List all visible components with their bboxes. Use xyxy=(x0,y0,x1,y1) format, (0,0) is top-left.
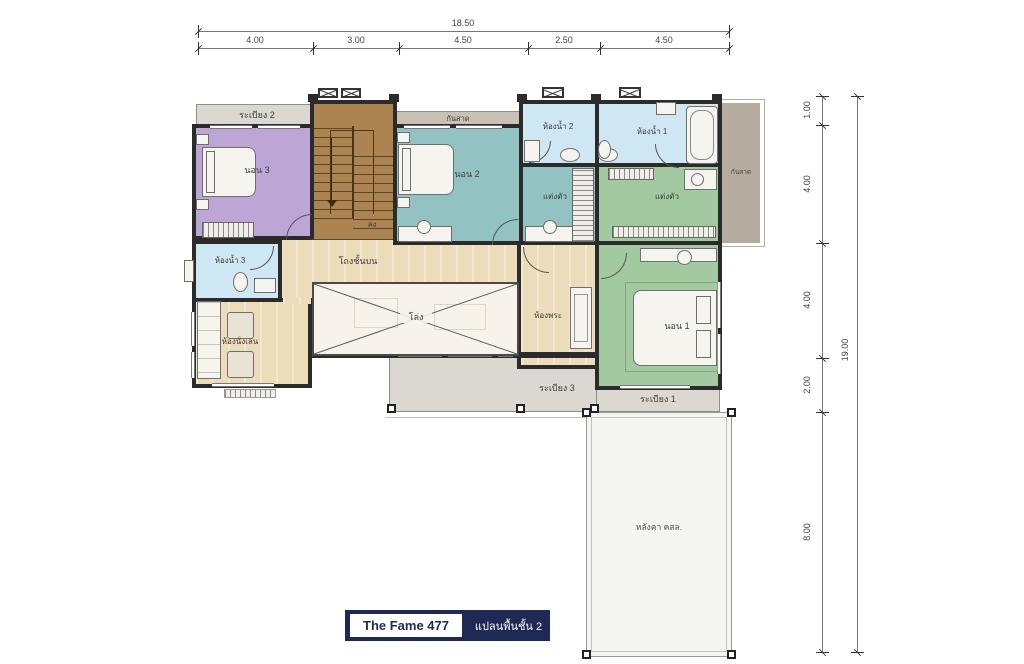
living-hall-opening xyxy=(283,297,311,304)
dressing-b-label: แต่งตัว xyxy=(637,192,697,202)
dim-label: 3.00 xyxy=(336,36,376,46)
column-post xyxy=(727,650,736,659)
awning-right: กันสาด xyxy=(722,103,760,243)
dim-tick xyxy=(816,412,829,413)
toilet xyxy=(233,272,248,292)
balcony-2-label: ระเบียง 2 xyxy=(239,110,275,121)
dim-tick xyxy=(198,25,199,38)
bathtub xyxy=(686,106,718,164)
pillow xyxy=(402,148,411,191)
dim-label: 4.50 xyxy=(443,36,483,46)
title-name-box: The Fame 477 xyxy=(350,614,462,637)
roof-slab xyxy=(586,412,732,657)
dim-tick xyxy=(729,42,730,55)
nightstand xyxy=(397,132,410,143)
table xyxy=(227,351,254,378)
dim-label-total-height: 19.00 xyxy=(841,330,851,370)
bedroom-3-label: นอน 3 xyxy=(227,165,287,176)
balcony-1: ระเบียง 1 xyxy=(596,388,720,412)
title-subtitle: แปลนพื้นชั้น 2 xyxy=(467,610,550,641)
void-label: โล่ง xyxy=(400,312,432,323)
column-post xyxy=(727,408,736,417)
void-open-to-below: โล่ง xyxy=(312,282,519,356)
dim-tick xyxy=(729,25,730,38)
dim-tick xyxy=(851,96,864,97)
planter-box xyxy=(224,389,276,398)
dim-line xyxy=(822,96,823,652)
wardrobe xyxy=(202,222,254,238)
prayer-label: ห้องพระ xyxy=(518,311,578,321)
hall-label: โถงชั้นบน xyxy=(318,256,398,267)
window xyxy=(210,125,252,129)
stair-arrow-head xyxy=(327,200,337,207)
dim-tick xyxy=(198,42,199,55)
dim-line xyxy=(198,48,729,49)
roof-slab-inner-line xyxy=(591,417,727,652)
wall-stub xyxy=(712,94,722,102)
sink xyxy=(254,278,276,293)
dim-tick xyxy=(816,125,829,126)
balcony-1-label: ระเบียง 1 xyxy=(640,394,676,405)
dim-tick xyxy=(528,42,529,55)
window xyxy=(620,385,690,389)
pillow xyxy=(206,151,215,193)
dim-label: 4.50 xyxy=(644,36,684,46)
dim-label: 2.00 xyxy=(803,365,813,405)
living-label: ห้องนั่งเล่น xyxy=(205,337,275,347)
roof-vent-icon xyxy=(619,87,641,98)
roof-vent-icon xyxy=(341,88,361,98)
wall-stub xyxy=(389,94,399,102)
wall-stub xyxy=(308,94,318,102)
wardrobe xyxy=(608,168,654,180)
wardrobe xyxy=(572,168,594,242)
window xyxy=(191,312,195,346)
dim-label: 1.00 xyxy=(803,90,813,130)
dim-label: 4.00 xyxy=(803,164,813,204)
bedroom-2-label: นอน 2 xyxy=(437,169,497,180)
washbasin xyxy=(691,173,704,186)
window xyxy=(258,125,300,129)
title-block: The Fame 477 แปลนพื้นชั้น 2 xyxy=(345,610,550,641)
dim-line xyxy=(857,96,858,652)
dim-label: 2.50 xyxy=(544,36,584,46)
wardrobe xyxy=(612,226,716,238)
roof-vent-icon xyxy=(318,88,338,98)
dim-tick xyxy=(313,42,314,55)
awning-right-label: กันสาด xyxy=(731,169,751,177)
bathroom-1-label: ห้องน้ำ 1 xyxy=(622,127,682,137)
bathroom-2-label: ห้องน้ำ 2 xyxy=(528,122,588,132)
window xyxy=(212,383,274,387)
dim-tick xyxy=(816,652,829,653)
stairs-down-label: ลง xyxy=(360,220,384,230)
roof-label: หลังคา คสล. xyxy=(619,522,699,533)
dim-line xyxy=(198,31,729,32)
nightstand xyxy=(397,197,410,208)
dim-tick xyxy=(816,358,829,359)
bathtub-inner xyxy=(690,110,714,160)
window xyxy=(456,125,502,129)
column-post xyxy=(582,650,591,659)
window xyxy=(191,352,195,378)
sink xyxy=(656,102,676,115)
dim-tick xyxy=(399,42,400,55)
column-post xyxy=(582,408,591,417)
vanity-mirror xyxy=(543,220,557,234)
dressing-a-label: แต่งตัว xyxy=(525,192,585,202)
dim-label-total-width: 18.50 xyxy=(443,19,483,29)
stair-arrow-line xyxy=(331,138,332,200)
dim-label: 4.00 xyxy=(803,280,813,320)
dim-label: 8.00 xyxy=(803,512,813,552)
toilet xyxy=(560,148,580,162)
wall-niche xyxy=(184,260,194,282)
window xyxy=(404,125,450,129)
floor-plan-canvas: 18.50 4.00 3.00 4.50 2.50 4.50 1.00 4.00… xyxy=(0,0,1024,664)
dim-label: 4.00 xyxy=(235,36,275,46)
wall-stub xyxy=(517,94,527,102)
awning-outline-line xyxy=(385,417,586,418)
dim-tick xyxy=(816,96,829,97)
dim-tick xyxy=(600,42,601,55)
vanity-mirror xyxy=(417,220,431,234)
roof-vent-icon xyxy=(542,87,564,98)
nightstand xyxy=(196,134,209,145)
column-post xyxy=(387,404,396,413)
pillow xyxy=(696,330,711,358)
sink xyxy=(524,140,540,162)
balcony-3-label: ระเบียง 3 xyxy=(527,383,587,394)
vanity-mirror xyxy=(677,250,692,265)
table xyxy=(227,312,254,339)
nightstand xyxy=(196,199,209,210)
pillow xyxy=(696,296,711,324)
wall-stub xyxy=(591,94,601,102)
column-post xyxy=(590,404,599,413)
column-post xyxy=(516,404,525,413)
toilet xyxy=(598,140,611,159)
awning-top-label: กันสาด xyxy=(446,114,469,123)
bedroom-1-label: นอน 1 xyxy=(647,321,707,332)
title-name: The Fame 477 xyxy=(363,618,449,633)
dim-tick xyxy=(851,652,864,653)
bathroom-3-label: ห้องน้ำ 3 xyxy=(200,256,260,266)
dim-tick xyxy=(816,243,829,244)
